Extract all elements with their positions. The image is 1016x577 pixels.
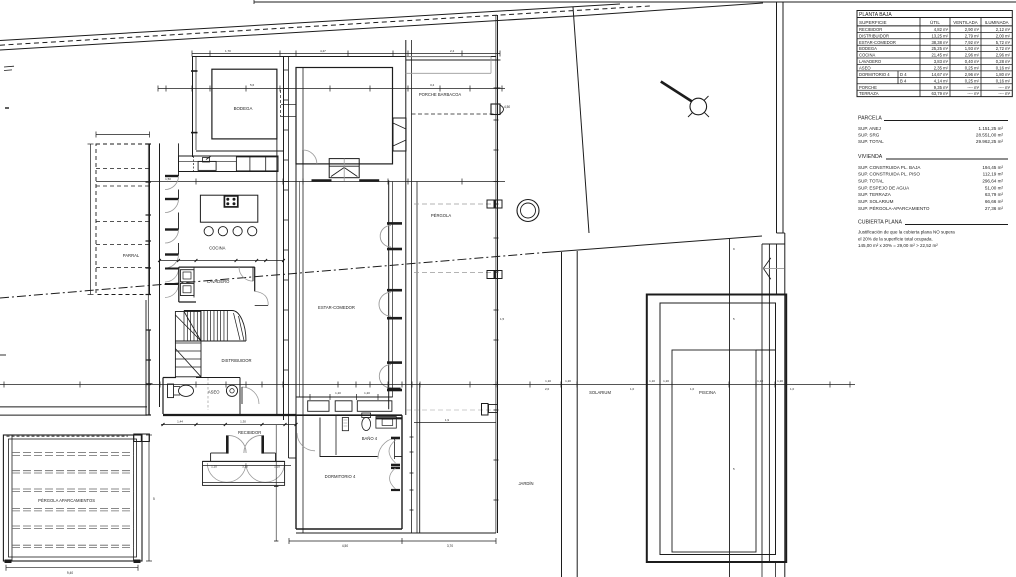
svg-text:1,10: 1,10 [757,379,763,383]
svg-text:VIVIENDA: VIVIENDA [858,154,883,160]
svg-text:2,12 m²: 2,12 m² [996,27,1011,32]
svg-text:2,0: 2,0 [545,387,550,391]
svg-text:---- m²: ---- m² [967,91,979,96]
svg-text:SUP. TOTAL: SUP. TOTAL [858,179,884,184]
svg-text:2,96 m²: 2,96 m² [965,72,980,77]
svg-text:1,20: 1,20 [364,391,370,395]
svg-text:el 20% de la superficie total: el 20% de la superficie total ocupada. [858,236,933,241]
svg-text:2,00 m²: 2,00 m² [996,33,1011,38]
svg-text:2,35 m²: 2,35 m² [934,65,949,70]
svg-text:2,4: 2,4 [450,49,455,53]
svg-text:1,70: 1,70 [225,49,231,53]
svg-text:3,4: 3,4 [430,83,435,87]
svg-text:---- m²: ---- m² [967,85,979,90]
svg-text:1,20: 1,20 [663,379,669,383]
svg-text:LAVADERO: LAVADERO [859,59,882,64]
svg-text:JARDÍN: JARDÍN [518,481,533,486]
svg-text:ASEO: ASEO [208,390,220,395]
svg-text:ILUMINADA: ILUMINADA [985,20,1009,25]
svg-text:112,19 m²: 112,19 m² [983,172,1004,177]
svg-text:4,14 m²: 4,14 m² [934,78,949,83]
svg-text:1,10: 1,10 [545,379,551,383]
svg-text:SUP. PÉRGOLA-APARCAMIENTO: SUP. PÉRGOLA-APARCAMIENTO [858,205,930,211]
svg-text:194,45 m²: 194,45 m² [982,165,1003,170]
svg-text:SUP. TOTAL: SUP. TOTAL [858,139,884,144]
svg-text:1,44: 1,44 [177,420,183,424]
svg-text:63,79 m²: 63,79 m² [931,91,948,96]
svg-text:25,25 m²: 25,25 m² [931,46,948,51]
svg-text:1,10: 1,10 [274,465,280,469]
svg-text:PLANTA BAJA: PLANTA BAJA [859,12,892,18]
svg-text:1.151,25 m²: 1.151,25 m² [978,126,1003,131]
svg-text:SUP. TERRAZA: SUP. TERRAZA [858,192,892,197]
svg-text:145,00 m² x 20% = 29,00 m² > 2: 145,00 m² x 20% = 29,00 m² > 22,52 m² [858,243,938,248]
svg-text:0,25 m²: 0,25 m² [965,65,980,70]
svg-text:21,45 m²: 21,45 m² [931,53,948,58]
svg-text:2,72 m²: 2,72 m² [996,46,1011,51]
svg-text:5,72 m²: 5,72 m² [996,40,1011,45]
svg-text:DISTRIBUIDOR: DISTRIBUIDOR [221,358,251,363]
svg-text:RECIBIDOR: RECIBIDOR [859,27,882,32]
svg-text:D 4: D 4 [900,72,907,77]
svg-text:1,50: 1,50 [165,177,171,181]
svg-text:0,16 m²: 0,16 m² [996,78,1011,83]
svg-text:4,50: 4,50 [504,105,510,109]
svg-text:PARRAL: PARRAL [123,253,140,258]
svg-text:DORMITORIO 4: DORMITORIO 4 [859,72,890,77]
svg-text:38,38 m²: 38,38 m² [931,40,948,45]
svg-text:0,40 m²: 0,40 m² [965,59,980,64]
svg-text:SUPERFICIE: SUPERFICIE [859,20,887,25]
svg-text:SUP. SOLARIUM: SUP. SOLARIUM [858,199,894,204]
svg-text:ÚTIL: ÚTIL [930,19,940,25]
svg-text:PÉRGOLA APARCAMIENTOS: PÉRGOLA APARCAMIENTOS [38,498,95,503]
svg-text:1,80 m²: 1,80 m² [996,72,1011,77]
svg-text:0,25 m²: 0,25 m² [965,78,980,83]
svg-text:LAVADERO: LAVADERO [207,279,230,284]
svg-text:CUBIERTA PLANA: CUBIERTA PLANA [858,220,902,226]
svg-text:5,6: 5,6 [250,83,255,87]
svg-text:2,90 m²: 2,90 m² [965,27,980,32]
svg-text:SUP. CONSTRUIDA PL. BAJA: SUP. CONSTRUIDA PL. BAJA [858,165,921,170]
svg-text:4,50: 4,50 [342,544,348,548]
svg-text:2,96 m²: 2,96 m² [965,53,980,58]
svg-text:3,20: 3,20 [242,465,248,469]
svg-text:1,30: 1,30 [240,420,246,424]
svg-text:BAÑO 4: BAÑO 4 [362,436,378,441]
svg-text:1,0: 1,0 [790,387,795,391]
svg-text:SOLARIUM: SOLARIUM [589,390,611,395]
svg-text:29.962,25 m²: 29.962,25 m² [976,139,1004,144]
svg-text:5: 5 [153,497,155,501]
svg-text:3,83 m²: 3,83 m² [934,59,949,64]
svg-text:14,67 m²: 14,67 m² [931,72,948,77]
svg-text:DORMITORIO 4: DORMITORIO 4 [325,474,356,479]
svg-text:63,79 m²: 63,79 m² [985,192,1004,197]
svg-text:TERRAZA: TERRAZA [859,91,879,96]
svg-text:4,47: 4,47 [320,49,326,53]
svg-text:PARCELA: PARCELA [858,116,882,122]
svg-text:Justificación de que la cubier: Justificación de que la cubierta plana N… [858,230,955,235]
svg-text:1,0: 1,0 [630,387,635,391]
svg-text:1,10: 1,10 [649,379,655,383]
svg-text:SUP. CONSTRUIDA PL. PISO: SUP. CONSTRUIDA PL. PISO [858,172,920,177]
svg-text:BODEGA: BODEGA [234,106,253,111]
svg-text:B 4: B 4 [900,78,907,83]
svg-text:9,40: 9,40 [67,571,73,575]
svg-text:28.551,00 m²: 28.551,00 m² [976,133,1004,138]
svg-text:4,82 m²: 4,82 m² [934,27,949,32]
svg-text:1,10: 1,10 [211,465,217,469]
svg-text:2,96 m²: 2,96 m² [996,53,1011,58]
svg-text:9,35 m²: 9,35 m² [934,85,949,90]
svg-text:COCINA: COCINA [209,246,225,251]
svg-text:1,5: 1,5 [500,317,505,321]
svg-text:BODEGA: BODEGA [859,46,877,51]
svg-text:1,9: 1,9 [445,418,450,422]
svg-text:1,20: 1,20 [565,379,571,383]
svg-text:27,36 m²: 27,36 m² [985,206,1004,211]
svg-text:SUP. ANEJ: SUP. ANEJ [858,126,881,131]
svg-text:COCINA: COCINA [859,53,875,58]
svg-text:PORCHE BARBACOA: PORCHE BARBACOA [419,92,462,97]
svg-text:---- m²: ---- m² [998,85,1010,90]
svg-text:0,16 m²: 0,16 m² [996,65,1011,70]
svg-text:1,0: 1,0 [690,387,695,391]
svg-text:3,70: 3,70 [447,544,453,548]
svg-text:ASEO: ASEO [859,65,871,70]
svg-text:SUP. ESPEJO DE AGUA: SUP. ESPEJO DE AGUA [858,185,910,190]
svg-text:51,00 m²: 51,00 m² [985,185,1004,190]
svg-text:RECIBIDOR: RECIBIDOR [238,430,261,435]
svg-text:296,64 m²: 296,64 m² [982,179,1003,184]
svg-text:DISTRIBUIDOR: DISTRIBUIDOR [859,33,889,38]
svg-text:---- m²: ---- m² [998,91,1010,96]
svg-text:SUP. SRG: SUP. SRG [858,133,880,138]
svg-text:PORCHE: PORCHE [859,85,877,90]
svg-text:66,66 m²: 66,66 m² [985,199,1004,204]
svg-text:1,20: 1,20 [777,379,783,383]
svg-text:ESTAR-COMEDOR: ESTAR-COMEDOR [318,305,355,310]
svg-text:2,79 m²: 2,79 m² [965,33,980,38]
svg-text:13,25 m²: 13,25 m² [931,33,948,38]
svg-text:1,93 m²: 1,93 m² [965,46,980,51]
svg-text:0,28 m²: 0,28 m² [996,59,1011,64]
svg-text:PISCINA: PISCINA [699,390,716,395]
svg-text:7,92 m²: 7,92 m² [965,40,980,45]
svg-text:VENTILADA: VENTILADA [953,20,977,25]
svg-text:1,20: 1,20 [335,391,341,395]
svg-text:PÉRGOLA: PÉRGOLA [431,213,451,218]
svg-text:ESTAR-COMEDOR: ESTAR-COMEDOR [859,40,896,45]
